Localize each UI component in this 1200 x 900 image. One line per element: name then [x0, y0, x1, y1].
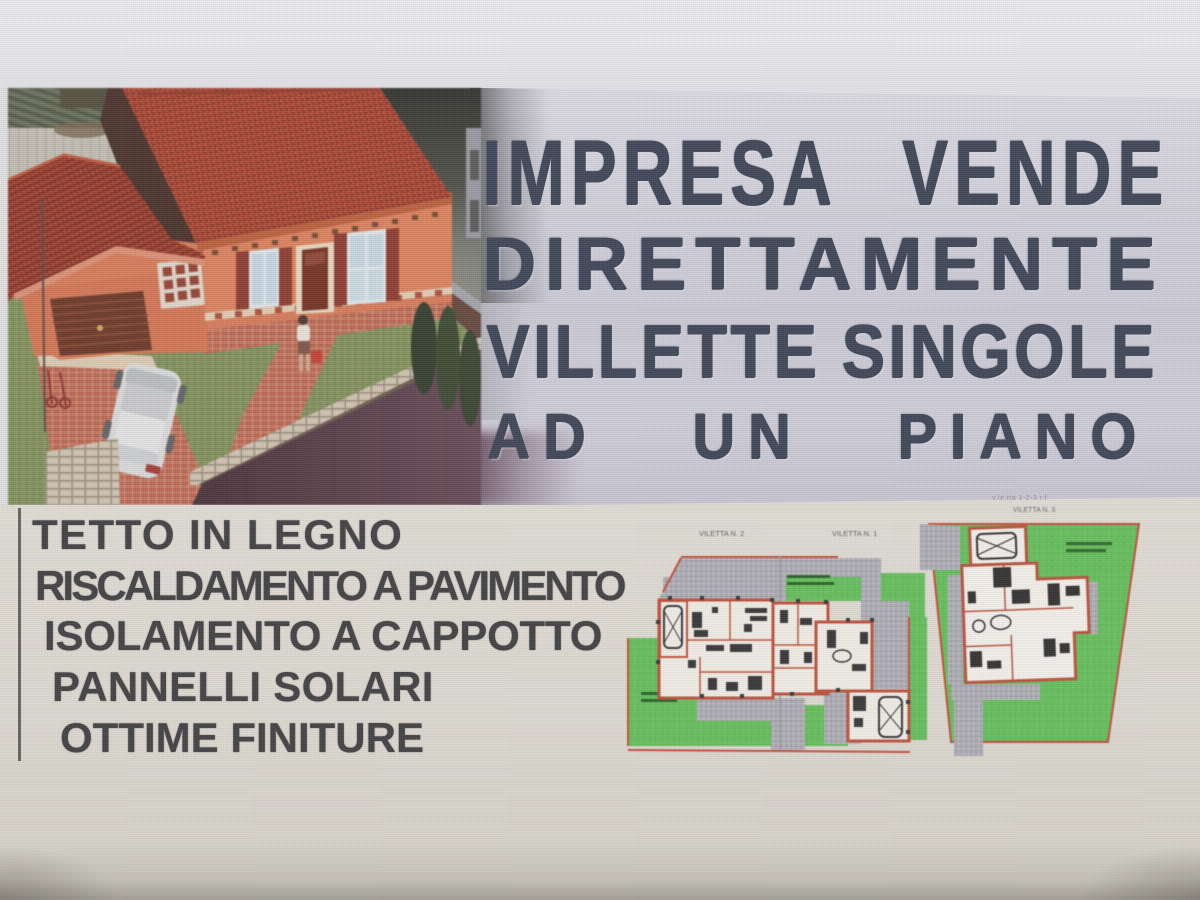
svg-text:VILETTA N. 3: VILETTA N. 3 — [1013, 507, 1055, 514]
svg-text:VILETTA N. 1: VILETTA N. 1 — [832, 529, 877, 538]
svg-text:VILETTA N. 2: VILETTA N. 2 — [699, 529, 744, 538]
